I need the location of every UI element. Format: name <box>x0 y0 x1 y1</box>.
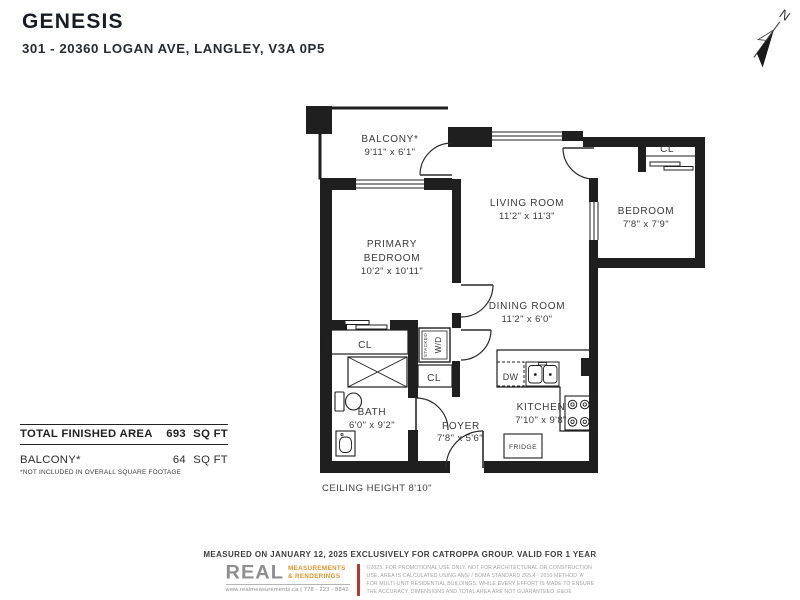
balcony-label: BALCONY* <box>361 134 418 145</box>
balcony-railing-top <box>332 107 448 110</box>
area-summary-table: TOTAL FINISHED AREA 693 SQ FT BALCONY* 6… <box>20 424 228 476</box>
foyer-closet-label: CL <box>427 373 441 384</box>
dining-room-label: DINING ROOM <box>489 301 566 312</box>
footer: MEASURED ON JANUARY 12, 2025 EXCLUSIVELY… <box>0 550 800 596</box>
dining-room-dims: 11'2" x 6'0" <box>502 314 553 325</box>
total-area-value: 693 <box>166 428 186 440</box>
primary-bedroom-label: PRIMARY <box>367 239 417 250</box>
total-area-label: TOTAL FINISHED AREA <box>20 428 166 440</box>
washer-dryer-label: W/D <box>434 337 443 354</box>
footer-divider <box>357 564 360 596</box>
disclaimer-line: THE ACCURACY, DIMENSIONS AND TOTAL AREA … <box>367 588 575 596</box>
bathtub-icon <box>348 357 407 387</box>
bedroom-label: BEDROOM <box>618 206 675 217</box>
kitchen-dims: 7'10" x 9'8" <box>515 415 567 426</box>
logo-subtitles: MEASUREMENTS & RENDERINGS <box>288 565 346 580</box>
table-row: BALCONY* 64 SQ FT <box>20 445 228 466</box>
bath-label: BATH <box>358 407 387 418</box>
measurement-statement: MEASURED ON JANUARY 12, 2025 EXCLUSIVELY… <box>203 550 596 559</box>
total-area-unit: SQ FT <box>186 428 228 440</box>
balcony-area-unit: SQ FT <box>186 454 228 466</box>
logo-contact: www.realmeasurements.ca | 778 - 223 - 88… <box>226 584 350 593</box>
closet-divider-wall <box>638 137 646 172</box>
disclaimer: ©2025. FOR PROMOTIONAL USE ONLY. NOT FOR… <box>367 564 575 596</box>
bedroom-dims: 7'8" x 7'9" <box>623 219 669 230</box>
logo-wordmark: REAL <box>226 564 284 581</box>
balcony-area-value: 64 <box>173 454 186 466</box>
area-footnote: *NOT INCLUDED IN OVERALL SQUARE FOOTAGE <box>20 469 228 476</box>
primary-closet-label: CL <box>358 340 372 351</box>
foyer-label: FOYER <box>442 421 480 432</box>
table-row: TOTAL FINISHED AREA 693 SQ FT <box>20 424 228 445</box>
kitchen-sink-icon <box>526 362 559 386</box>
balcony-door <box>420 143 452 175</box>
logo-top: REAL MEASUREMENTS & RENDERINGS <box>226 564 350 582</box>
living-room-dims: 11'2" x 11'3" <box>499 211 555 222</box>
kitchen-label: KITCHEN <box>517 402 566 413</box>
disclaimer-line: ©2025. FOR PROMOTIONAL USE ONLY. NOT FOR… <box>367 564 575 572</box>
disclaimer-line: FOR MULTI-UNIT RESIDENTIAL BUILDINGS. WH… <box>367 580 575 588</box>
sliding-door-icon <box>345 321 369 325</box>
fridge-label: FRIDGE <box>509 444 537 451</box>
dishwasher-label: DW <box>503 372 519 382</box>
balcony-corner-block <box>448 127 492 147</box>
balcony-area-label: BALCONY* <box>20 454 173 466</box>
living-room-label: LIVING ROOM <box>490 198 564 209</box>
primary-bedroom-window <box>356 180 424 188</box>
sliding-door-icon <box>650 162 680 166</box>
foyer-dims: 7'8" x 5'6" <box>437 433 483 444</box>
bath-sink-icon <box>336 431 355 456</box>
brand-row: REAL MEASUREMENTS & RENDERINGS www.realm… <box>226 564 575 596</box>
bath-dims: 6'0" x 9'2" <box>349 420 395 431</box>
company-logo: REAL MEASUREMENTS & RENDERINGS www.realm… <box>226 564 350 596</box>
sliding-door-icon <box>664 167 693 171</box>
wall-column <box>581 358 598 376</box>
logo-subtitle: & RENDERINGS <box>288 573 346 581</box>
primary-bedroom-dims: 10'2" x 10'11" <box>361 266 423 277</box>
logo-subtitle: MEASUREMENTS <box>288 565 346 573</box>
floorplan-page: { "header": { "title": "GENESIS", "addre… <box>0 0 800 600</box>
stove-icon <box>565 396 592 430</box>
living-room-window <box>492 132 562 140</box>
bedroom-closet-label: CL <box>660 144 674 155</box>
hall-door <box>461 330 491 360</box>
primary-bedroom-label: BEDROOM <box>364 253 421 264</box>
disclaimer-line: USE. AREA IS CALCULATED USING ANSI / BOM… <box>367 572 575 580</box>
sliding-door-icon <box>356 325 387 329</box>
ceiling-height-note: CEILING HEIGHT 8'10" <box>322 483 432 494</box>
balcony-railing-left <box>319 107 322 180</box>
bedroom-window <box>590 202 598 240</box>
bedroom-door <box>563 148 594 179</box>
stacked-label: STACKED <box>423 333 429 358</box>
balcony-dims: 9'11" x 6'1" <box>365 147 416 158</box>
floor-plan: BALCONY* 9'11" x 6'1" PRIMARY BEDROOM 10… <box>0 0 800 600</box>
